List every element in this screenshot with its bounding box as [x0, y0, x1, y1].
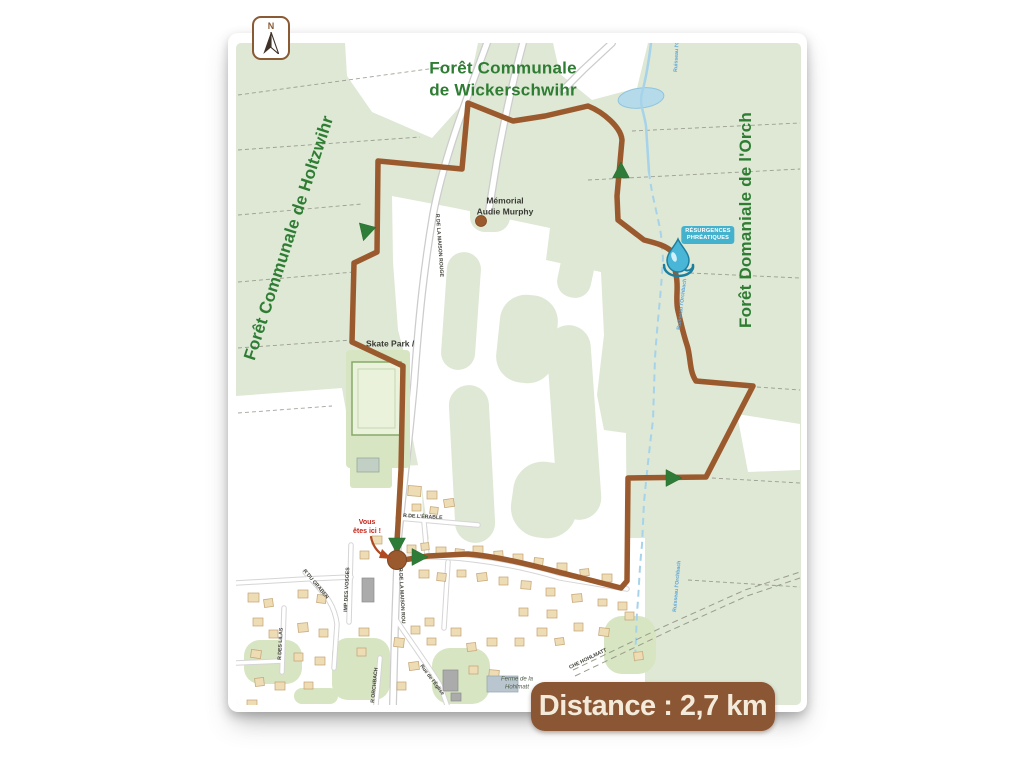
you-are-here-label: Vous êtes ici !	[353, 518, 381, 536]
building	[437, 573, 447, 582]
memorial-dot	[476, 216, 487, 227]
building	[412, 504, 421, 511]
park-area	[294, 688, 338, 704]
distance-value: Distance : 2,7 km	[539, 690, 767, 723]
building	[598, 599, 607, 606]
building	[397, 682, 406, 690]
building	[451, 628, 461, 636]
compass-n-label: N	[254, 21, 288, 31]
building	[419, 570, 429, 578]
resurgences-badge: RÉSURGENCES PHRÉATIQUES	[681, 226, 734, 244]
building	[499, 577, 508, 585]
building	[457, 570, 466, 577]
building	[304, 682, 313, 689]
trail-start-point	[388, 551, 407, 570]
building	[427, 491, 437, 499]
building	[425, 618, 434, 626]
building	[264, 598, 274, 607]
building	[574, 623, 583, 631]
building	[360, 551, 369, 559]
building	[469, 666, 478, 674]
building	[515, 638, 524, 646]
building	[248, 593, 259, 602]
trail-map-svg: R DE LA MAISON ROUGER DE LA MAISON ROUR …	[0, 0, 1024, 758]
building	[298, 590, 308, 598]
building	[247, 700, 257, 706]
building	[275, 682, 285, 690]
forest-patch	[448, 384, 496, 544]
building	[427, 638, 436, 645]
memorial-label: Mémorial Audie Murphy	[477, 195, 534, 216]
building	[477, 572, 488, 581]
building	[618, 602, 627, 610]
annex-building	[357, 458, 379, 472]
building	[359, 628, 369, 636]
distance-badge: Distance : 2,7 km	[531, 682, 775, 731]
building	[572, 594, 583, 603]
building	[487, 638, 497, 646]
building	[269, 630, 278, 638]
building	[357, 648, 366, 656]
building	[298, 623, 309, 633]
building	[315, 657, 325, 665]
building	[430, 507, 439, 515]
forest-label-wickerschwihr: Forêt Communale de Wickerschwihr	[429, 57, 577, 101]
building	[521, 581, 532, 590]
building	[443, 670, 458, 691]
building	[519, 608, 528, 616]
sports-field	[352, 362, 401, 435]
farm-label: Ferme de la Hohlmatt	[501, 677, 533, 692]
building	[408, 486, 422, 497]
building	[634, 652, 644, 661]
compass-needle-icon	[263, 32, 279, 54]
building	[599, 627, 610, 636]
building	[547, 610, 557, 618]
street	[236, 661, 282, 663]
building	[362, 578, 374, 602]
building	[255, 678, 265, 687]
building	[625, 612, 634, 620]
building	[294, 653, 303, 661]
building	[555, 637, 565, 645]
park-area	[604, 616, 656, 674]
clearing	[737, 414, 800, 472]
building	[411, 626, 420, 634]
trail-map-page: R DE LA MAISON ROUGER DE LA MAISON ROUR …	[0, 0, 1024, 758]
building	[253, 618, 263, 626]
building	[451, 693, 461, 701]
building	[394, 638, 405, 648]
building	[251, 649, 262, 658]
building	[319, 629, 328, 637]
building	[537, 628, 547, 636]
forest-label-orch: Forêt Domaniale de l'Orch	[735, 112, 757, 328]
building	[467, 643, 477, 652]
building	[421, 543, 430, 551]
skatepark-label: Skate Park /	[366, 339, 414, 350]
building	[443, 498, 454, 507]
building	[546, 588, 555, 596]
building	[409, 661, 420, 670]
north-compass: N	[252, 16, 290, 60]
